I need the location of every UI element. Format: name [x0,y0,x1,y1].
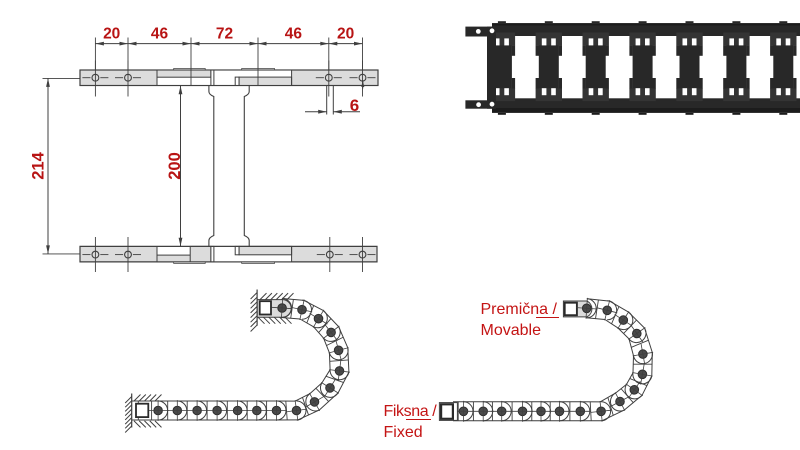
svg-text:Fiksna /: Fiksna / [384,403,438,420]
svg-text:Premična /: Premična / [481,301,558,318]
svg-text:Fixed: Fixed [384,424,423,441]
svg-text:200: 200 [166,152,184,180]
svg-text:46: 46 [285,26,303,43]
svg-text:20: 20 [337,26,354,43]
svg-text:6: 6 [350,96,359,115]
svg-text:20: 20 [103,26,120,43]
svg-text:Movable: Movable [481,322,542,339]
svg-text:72: 72 [216,26,233,43]
svg-text:214: 214 [30,151,48,179]
svg-text:46: 46 [151,26,169,43]
